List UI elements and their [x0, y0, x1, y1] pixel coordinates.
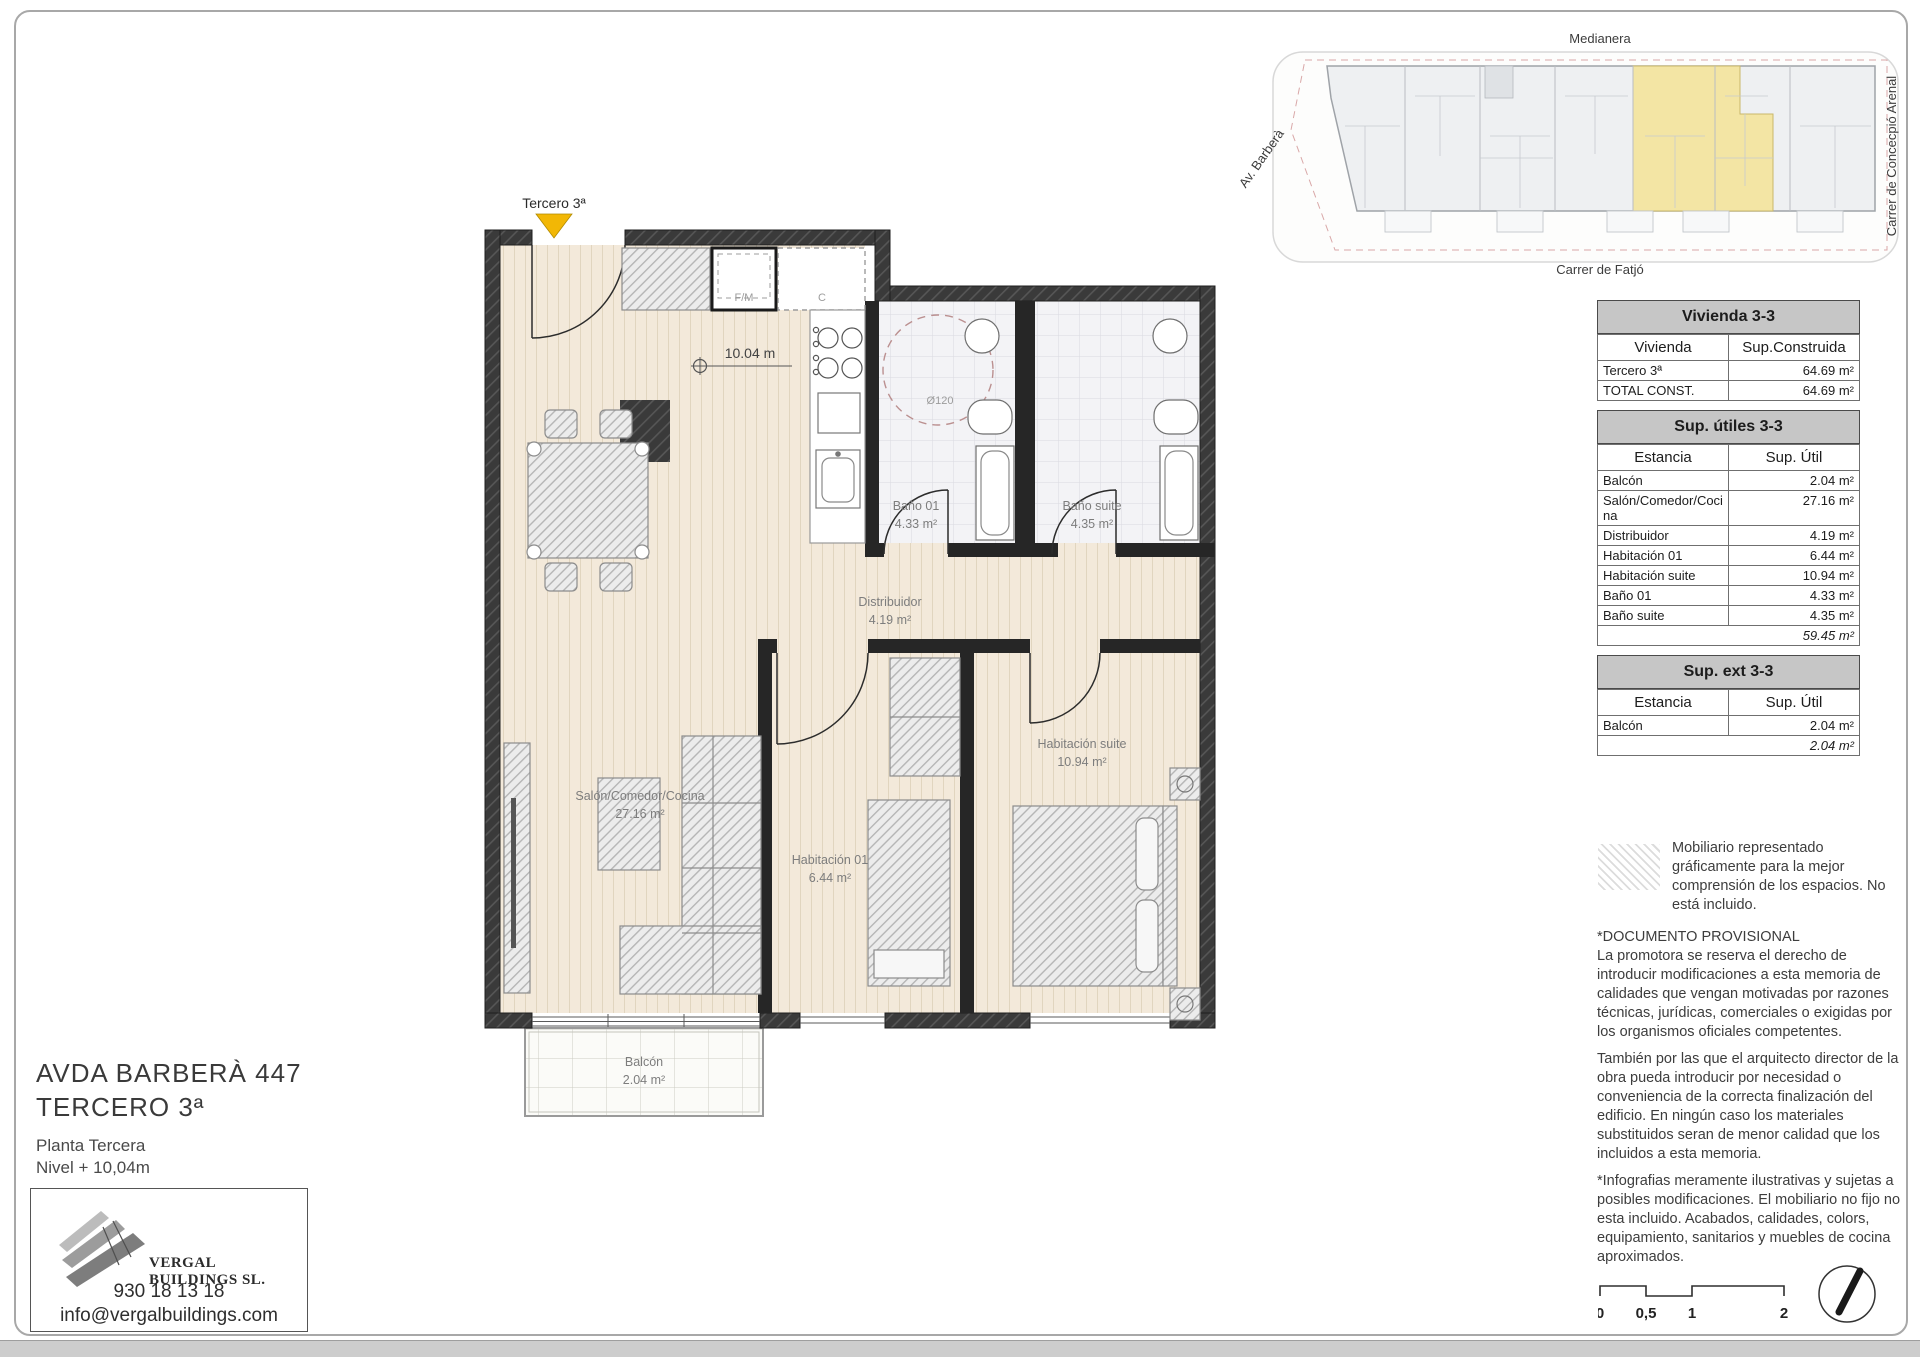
hab01-bed [868, 800, 950, 986]
banosuite-tub [1160, 446, 1198, 540]
windows [532, 1014, 1170, 1027]
utiles-table: Estancia Sup. Útil Balcón 2.04 m² Salón/… [1597, 444, 1860, 646]
sink [816, 450, 860, 508]
banosuite-label: Baño suite [1062, 499, 1121, 513]
table-title-utiles: Sup. útiles 3-3 [1597, 410, 1860, 444]
table-row: TOTAL CONST. 64.69 m² [1598, 381, 1860, 401]
level-label: 10.04 m [725, 345, 776, 361]
fridge-label: F/M [735, 292, 754, 304]
entry-triangle-icon [536, 214, 572, 238]
table-row: Habitación suite 10.94 m² [1598, 566, 1860, 586]
floor-plan: Tercero 3ª 10.04 m Salón/Comedor/Cocina … [470, 188, 1230, 1123]
entry-marker-label: Tercero 3ª [522, 195, 586, 211]
col-header: Estancia [1598, 690, 1729, 716]
area-tables: Vivienda 3-3 Vivienda Sup.Construida Ter… [1597, 300, 1860, 756]
balcon-label: Balcón [625, 1055, 663, 1069]
salon-label: Salón/Comedor/Cocina [575, 789, 704, 803]
turning-circle-label: Ø120 [927, 395, 954, 407]
bano01-tub [976, 446, 1014, 540]
stair-core [1485, 66, 1513, 98]
furniture-hatch-swatch [1598, 844, 1660, 890]
tv-sideboard [504, 743, 530, 993]
company-logo-icon [53, 1205, 149, 1291]
project-floor: Planta Tercera [36, 1136, 145, 1156]
hab01-area: 6.44 m² [809, 871, 851, 885]
table-title-ext: Sup. ext 3-3 [1597, 655, 1860, 689]
suite-bed [1013, 806, 1177, 986]
col-header: Vivienda [1598, 335, 1729, 361]
table-row: Baño 01 4.33 m² [1598, 586, 1860, 606]
table-title-vivienda: Vivienda 3-3 [1597, 300, 1860, 334]
street-label-fatjo: Carrer de Fatjó [1556, 262, 1643, 277]
ext-table: Estancia Sup. Útil Balcón 2.04 m² 2.04 m… [1597, 689, 1860, 756]
architect-note: También por las que el arquitecto direct… [1597, 1050, 1903, 1164]
scale-05: 0,5 [1636, 1305, 1657, 1322]
distribuidor-label: Distribuidor [858, 595, 921, 609]
infographics-note: *Infografias meramente ilustrativas y su… [1597, 1172, 1903, 1267]
salon-area: 27.16 m² [615, 807, 664, 821]
table-row: Balcón 2.04 m² [1598, 716, 1860, 736]
habsuite-label: Habitación suite [1038, 737, 1127, 751]
building-outline [1327, 66, 1875, 211]
scale-0: 0 [1598, 1305, 1604, 1322]
project-level: Nivel + 10,04m [36, 1158, 150, 1178]
column-label: C [818, 292, 826, 304]
table-row: Salón/Comedor/Cocina 27.16 m² [1598, 491, 1860, 526]
project-address: AVDA BARBERÀ 447 [36, 1058, 302, 1089]
provisional-title: *DOCUMENTO PROVISIONAL [1597, 928, 1903, 947]
key-plan: Medianera Av. Barberà Carrer de Concecpi… [1235, 26, 1907, 280]
banosuite-toilet [1154, 400, 1198, 434]
street-label-medianera: Medianera [1569, 31, 1631, 46]
banosuite-basin [1153, 319, 1187, 353]
col-header: Sup.Construida [1729, 335, 1860, 361]
suite-furniture [1013, 768, 1200, 1020]
col-header: Estancia [1598, 445, 1729, 471]
banosuite-area: 4.35 m² [1071, 517, 1113, 531]
bano01-label: Baño 01 [893, 499, 940, 513]
provisional-note: La promotora se reserva el derecho de in… [1597, 947, 1903, 1042]
col-header: Sup. Útil [1729, 445, 1860, 471]
company-phone: 930 18 13 18 [31, 1281, 307, 1303]
table-row: Balcón 2.04 m² [1598, 471, 1860, 491]
bano01-basin [965, 319, 999, 353]
col-header: Sup. Útil [1729, 690, 1860, 716]
street-label-concepcio-arenal: Carrer de Concecpió Arenal [1884, 76, 1899, 237]
hab01-label: Habitación 01 [792, 853, 868, 867]
table-total-row: 59.45 m² [1598, 626, 1860, 646]
table-row: Habitación 01 6.44 m² [1598, 546, 1860, 566]
scale-2: 2 [1780, 1305, 1788, 1322]
balcon-area: 2.04 m² [623, 1073, 665, 1087]
vivienda-table: Vivienda Sup.Construida Tercero 3ª 64.69… [1597, 334, 1860, 401]
furniture-legend-note: Mobiliario representado gráficamente par… [1672, 839, 1904, 915]
scale-bar: 0 0,5 1 2 [1598, 1280, 1808, 1332]
balcony-floor [525, 1028, 763, 1116]
sheet-bottom-edge [0, 1340, 1920, 1357]
table-row: Baño suite 4.35 m² [1598, 606, 1860, 626]
distribuidor-area: 4.19 m² [869, 613, 911, 627]
scale-1: 1 [1688, 1305, 1696, 1322]
bano01-area: 4.33 m² [895, 517, 937, 531]
bano01-toilet [968, 400, 1012, 434]
company-email: info@vergalbuildings.com [31, 1305, 307, 1327]
company-logo-box: VERGAL BUILDINGS SL. 930 18 13 18 info@v… [30, 1188, 308, 1332]
north-compass-icon [1805, 1258, 1889, 1342]
project-unit: TERCERO 3ª [36, 1092, 204, 1123]
habsuite-area: 10.94 m² [1057, 755, 1106, 769]
table-row: Tercero 3ª 64.69 m² [1598, 361, 1860, 381]
table-total-row: 2.04 m² [1598, 736, 1860, 756]
table-row: Distribuidor 4.19 m² [1598, 526, 1860, 546]
